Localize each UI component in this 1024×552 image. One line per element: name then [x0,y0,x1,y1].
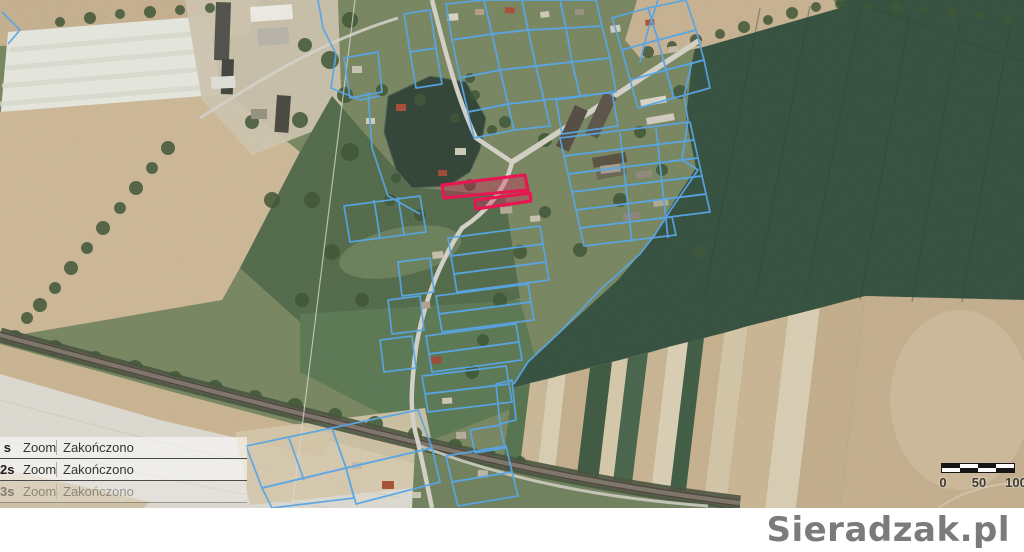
notification-status: Zakończono [56,462,247,477]
notification-time: s [0,440,11,455]
notification-status: Zakończono [56,440,247,455]
scale-label-50: 50 [972,475,986,490]
bottom-strip: Sieradzak.pl [0,508,1024,552]
screenshot-stage: s Zoom Zakończono 2s Zoom Zakończono 3s … [0,0,1024,552]
map-scale-bar: 0 50 100 [941,463,1024,489]
aerial-map[interactable] [0,0,1024,508]
scale-label-100: 100 [1005,475,1024,490]
notification-row: 2s Zoom Zakończono [0,459,247,481]
notification-row: 3s Zoom Zakończono [0,481,247,503]
scale-bar-graphic [941,463,1015,473]
scale-label-0: 0 [939,475,946,490]
notification-row: s Zoom Zakończono [0,437,247,459]
notification-time: 3s [0,484,11,499]
notification-action: Zoom [23,462,56,477]
grain-overlay [0,0,1024,508]
notification-action: Zoom [23,484,56,499]
notification-status: Zakończono [56,484,247,499]
notification-time: 2s [0,462,11,477]
notification-action: Zoom [23,440,56,455]
notification-table: s Zoom Zakończono 2s Zoom Zakończono 3s … [0,437,247,503]
watermark-text: Sieradzak.pl [766,509,1010,551]
